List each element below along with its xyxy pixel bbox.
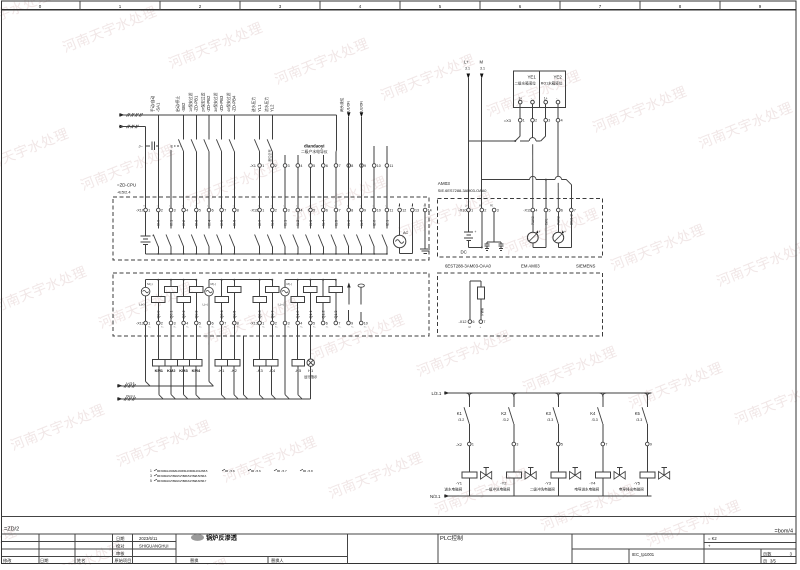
svg-text:SHIGUANGHUI: SHIGUANGHUI [139,543,169,548]
svg-text:=ZD/2: =ZD/2 [4,527,19,533]
svg-text:1: 1 [262,209,264,213]
svg-text:AC: AC [403,231,409,235]
svg-text:diandaoyi: diandaoyi [304,144,325,149]
svg-text:11: 11 [390,209,394,213]
svg-text:修改: 修改 [3,557,12,564]
svg-text:U1/ON: U1/ON [347,101,351,112]
svg-text:8: 8 [237,322,239,326]
svg-text:IEC_tp1001: IEC_tp1001 [632,552,655,557]
svg-text:替换: 替换 [190,557,199,564]
svg-text:7: 7 [339,209,341,213]
svg-text:二级冲洗电磁阀: 二级冲洗电磁阀 [530,486,555,491]
svg-text:6: 6 [561,209,563,213]
svg-text:-X10: -X10 [458,209,466,213]
svg-text:L+: L+ [465,203,468,207]
svg-text:-X13: -X13 [250,322,258,326]
svg-text:5: 5 [313,209,315,213]
svg-text:Q0.0: Q0.0 [157,311,161,319]
svg-text:1: 1 [148,322,150,326]
svg-text:4: 4 [186,322,188,326]
svg-text:L(+): L(+) [139,303,144,307]
svg-text:M: M [143,206,145,208]
svg-text:6: 6 [212,209,214,213]
svg-text:PE: PE [490,203,494,207]
svg-text:=ZD-CPU: =ZD-CPU [117,183,136,188]
svg-text:-SB2: -SB2 [181,102,186,112]
svg-text:进水电磁阀: 进水电磁阀 [444,486,462,491]
svg-text:Q0.5: Q0.5 [233,311,237,319]
svg-text:2023/6/11: 2023/6/11 [139,536,158,541]
svg-text:8: 8 [351,209,353,213]
svg-text:4: 4 [186,209,188,213]
svg-text:2: 2 [484,209,486,213]
svg-text:K2: K2 [501,411,507,416]
svg-text:K3: K3 [546,411,552,416]
svg-text:2: 2 [275,209,277,213]
svg-text:6: 6 [212,322,214,326]
svg-text:6EST288-3AM03-OAA0: 6EST288-3AM03-OAA0 [445,263,491,268]
svg-text:3: 3 [497,209,499,213]
svg-text:2#保安过滤: 2#保安过滤 [201,92,206,112]
svg-text:3: 3 [150,474,152,478]
svg-text:-SA1: -SA1 [156,102,161,112]
svg-text:-Y5: -Y5 [634,480,641,485]
svg-text:1: 1 [150,469,152,473]
svg-text:-ZD-PB3: -ZD-PB3 [219,95,224,112]
svg-text:5: 5 [561,443,563,447]
svg-text:审核: 审核 [116,550,125,557]
svg-text:-Y3: -Y3 [545,480,552,485]
svg-text:AM03: AM03 [438,181,450,186]
svg-text:PWR: PWR [481,307,485,315]
svg-text:/3.8: /3.8 [308,469,313,473]
svg-text:PLC控制: PLC控制 [440,534,463,542]
svg-text:-ZD-PB4: -ZD-PB4 [232,95,237,112]
svg-text:-ZD-PB2: -ZD-PB2 [206,95,211,112]
svg-text:Q0.7: Q0.7 [271,311,275,319]
svg-text:1: 1 [472,443,474,447]
svg-text:4: 4 [535,209,537,213]
svg-text:L+: L+ [464,60,469,65]
svg-text:Q0.2: Q0.2 [182,311,186,319]
svg-text:液位信号: 液位信号 [267,149,272,162]
svg-text:2: 2 [275,322,277,326]
svg-text:10: 10 [364,322,368,326]
svg-text:4: 4 [300,164,302,168]
svg-text:2: 2 [275,164,277,168]
svg-text:-K3: -K3 [256,368,263,373]
svg-text:进水压力: 进水压力 [251,97,256,112]
svg-text:Q1.3: Q1.3 [334,311,338,319]
svg-text:Q0.1: Q0.1 [169,311,173,319]
svg-text:Q1.2: Q1.2 [322,311,326,319]
svg-text:10: 10 [377,209,381,213]
svg-text:U2/ON: U2/ON [359,101,363,112]
svg-text:7: 7 [605,443,607,447]
svg-text:-K5: -K5 [295,368,302,373]
svg-text:M(-): M(-) [211,282,217,286]
svg-text:L/3.1: L/3.1 [432,391,442,396]
svg-text:=X3: =X3 [504,118,512,123]
svg-text:4: 4 [561,119,563,123]
svg-text:Q1.0: Q1.0 [296,311,300,319]
svg-text:1#保安过滤: 1#保安过滤 [188,92,193,112]
svg-text:/3.7: /3.7 [282,469,287,473]
svg-text:-X11: -X11 [250,209,258,213]
svg-text:E: E [171,143,174,148]
svg-text:M: M [479,203,481,207]
svg-text:1: 1 [471,209,473,213]
svg-text:页数: 页数 [763,551,772,558]
svg-text:2: 2 [161,209,163,213]
svg-text:6: 6 [326,164,328,168]
svg-text:Q0.6: Q0.6 [258,311,262,319]
svg-text:1: 1 [262,164,264,168]
svg-text:Q1.1: Q1.1 [309,311,313,319]
svg-text:6: 6 [326,209,328,213]
svg-text:12: 12 [402,209,406,213]
svg-text:RO1水箱液位: RO1水箱液位 [541,81,563,86]
svg-text:-X12: -X12 [458,320,466,324]
svg-text:4: 4 [300,209,302,213]
svg-text:3/5: 3/5 [770,558,776,563]
svg-text:9: 9 [364,164,366,168]
svg-text:M: M [469,325,471,329]
svg-text:6: 6 [326,322,328,326]
svg-text:3: 3 [288,322,290,326]
svg-text:8: 8 [351,164,353,168]
svg-text:7: 7 [224,322,226,326]
svg-text:3.1: 3.1 [465,67,470,71]
svg-text:-X2: -X2 [456,442,463,447]
svg-text:=bom/4: =bom/4 [775,529,794,535]
svg-text:7: 7 [338,322,340,326]
svg-text:/3.3: /3.3 [547,418,553,422]
svg-text:3: 3 [548,119,550,123]
svg-text:5: 5 [199,322,201,326]
svg-text:浓水压力: 浓水压力 [264,97,269,112]
svg-text:M(-): M(-) [147,282,153,286]
svg-text:3: 3 [288,209,290,213]
svg-text:3.1: 3.1 [480,67,485,71]
svg-text:YE1: YE1 [528,75,537,80]
svg-text:7: 7 [574,209,576,213]
svg-text:-Y4: -Y4 [589,480,596,485]
svg-text:姓名: 姓名 [77,557,85,564]
svg-text:9: 9 [364,209,366,213]
svg-text:-Y1: -Y1 [456,480,463,485]
svg-text:L(+): L(+) [203,303,208,307]
svg-text:/3.6: /3.6 [230,469,235,473]
svg-text:N/3.1: N/3.1 [430,494,441,499]
svg-text:-: - [556,97,557,101]
svg-text:1: 1 [262,322,264,326]
svg-text:3: 3 [174,322,176,326]
svg-text:+: + [564,230,566,234]
svg-text:-Y2: -Y2 [500,480,507,485]
svg-text:-X12: -X12 [136,322,144,326]
svg-text:+E5/2.4: +E5/2.4 [117,190,131,195]
svg-text:DC: DC [461,250,467,255]
svg-text:Q0.3: Q0.3 [195,311,199,319]
svg-text:11: 11 [390,164,394,168]
svg-text:KM1/1.5 2YB2/1.5 2YB3/1.5 2YB4: KM1/1.5 2YB2/1.5 2YB3/1.5 2YB4/1.5 K5/1.… [161,474,207,478]
svg-text:1: 1 [148,209,150,213]
svg-text:-X1: -X1 [250,163,257,168]
svg-text:9: 9 [650,443,652,447]
svg-text:5: 5 [313,322,315,326]
svg-text:Q0.4: Q0.4 [220,311,224,319]
svg-text:2: 2 [161,322,163,326]
svg-text:/3.6: /3.6 [256,469,261,473]
svg-text:两头液位: 两头液位 [339,97,344,112]
svg-text:/3.2: /3.2 [503,418,509,422]
svg-text:-X11: -X11 [523,209,531,213]
svg-text:SIE.6ES7288-3AM03-OAA0: SIE.6ES7288-3AM03-OAA0 [438,188,487,193]
svg-text:-: - [531,97,532,101]
svg-text:7: 7 [483,320,485,324]
svg-text:二级产水电导仪: 二级产水电导仪 [301,149,328,154]
svg-text:10: 10 [377,164,381,168]
svg-text:K5: K5 [635,411,641,416]
svg-text:+: + [539,230,541,234]
svg-text:K1: K1 [457,411,463,416]
svg-text:5: 5 [150,479,152,483]
svg-text:-X10: -X10 [136,209,144,213]
svg-text:EM AM03: EM AM03 [521,263,540,268]
svg-text:原始项目: 原始项目 [115,557,132,564]
svg-text:7: 7 [224,209,226,213]
svg-text:3: 3 [288,164,290,168]
svg-text:启动/停止: 启动/停止 [175,96,180,112]
svg-text:5: 5 [313,164,315,168]
svg-text:SIEMENS: SIEMENS [576,263,595,268]
svg-text:KM1/1.6 2YB2/1.6 2YB3/1.6 2YB4: KM1/1.6 2YB2/1.6 2YB3/1.6 2YB4/1.6 K5/1.… [161,479,207,483]
svg-text:YL1: YL1 [257,104,262,112]
svg-text:3: 3 [174,209,176,213]
svg-text:校对: 校对 [116,542,124,549]
svg-text:13: 13 [415,209,419,213]
svg-text:9: 9 [351,322,353,326]
svg-text:/3.2: /3.2 [458,418,464,422]
svg-text:锅炉反渗透: 锅炉反渗透 [206,534,238,542]
svg-text:M(-): M(-) [287,282,293,286]
svg-text:/3.3: /3.3 [592,418,598,422]
svg-text:手动/自动: 手动/自动 [150,96,155,112]
svg-text:6: 6 [473,320,475,324]
svg-text:5: 5 [549,209,551,213]
svg-text:M: M [480,60,484,65]
svg-text:K4: K4 [590,411,596,416]
svg-text:3: 3 [516,443,518,447]
svg-text:J~: J~ [139,143,144,148]
svg-text:-ZD-PB1: -ZD-PB1 [194,95,199,112]
svg-text:电导排出电磁阀: 电导排出电磁阀 [619,486,644,491]
svg-text:8: 8 [237,209,239,213]
svg-text:2: 2 [535,119,537,123]
svg-text:电导进水电磁阀: 电导进水电磁阀 [574,486,599,491]
svg-text:一级冲洗电磁阀: 一级冲洗电磁阀 [485,486,510,491]
svg-text:14: 14 [428,209,432,213]
svg-text:替换人: 替换人 [271,557,284,564]
svg-text:4#保安过滤: 4#保安过滤 [226,92,231,112]
svg-text:二级水箱液位: 二级水箱液位 [515,81,537,86]
svg-text:L(+): L(+) [279,303,284,307]
svg-text:YL2: YL2 [270,104,275,112]
svg-text:/3.3: /3.3 [636,418,642,422]
svg-text:+: + [475,230,477,234]
svg-text:5: 5 [199,209,201,213]
svg-text:4: 4 [300,322,302,326]
svg-text:-K4: -K4 [269,368,276,373]
svg-text:1: 1 [523,119,525,123]
svg-text:YE2: YE2 [554,75,563,80]
svg-text:3#保安过滤: 3#保安过滤 [213,92,218,112]
svg-text:KM1/1.4 KM2/1.4 KM3/1.4 KM4/1.: KM1/1.4 KM2/1.4 KM3/1.4 KM4/1.4 K1-K5/1.… [161,469,208,473]
svg-text:+: + [152,234,154,238]
svg-text:7: 7 [339,164,341,168]
svg-text:= K2: = K2 [708,536,717,541]
